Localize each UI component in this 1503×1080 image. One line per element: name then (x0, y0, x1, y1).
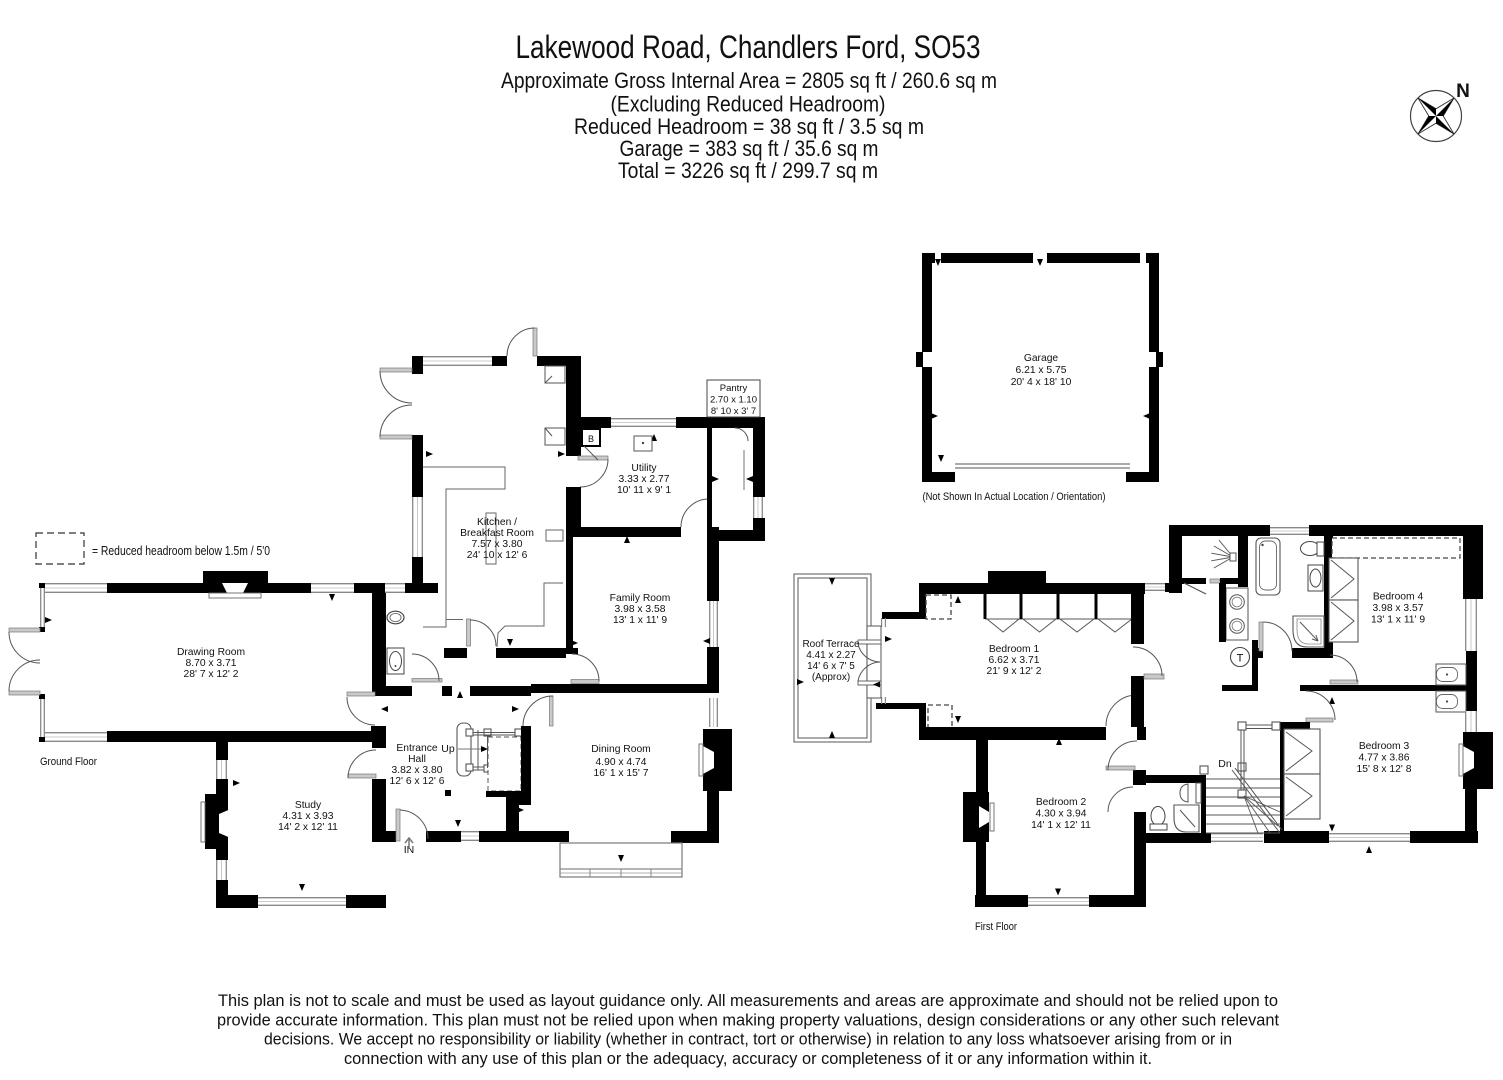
svg-text:4.90 x 4.74: 4.90 x 4.74 (596, 757, 647, 768)
svg-text:8' 10 x 3' 7: 8' 10 x 3' 7 (711, 406, 756, 417)
svg-text:provide accurate information.: provide accurate information. This plan … (217, 1010, 1279, 1029)
svg-text:8.70 x 3.71: 8.70 x 3.71 (186, 658, 237, 669)
svg-text:(Not Shown In Actual Location: (Not Shown In Actual Location / Orientat… (923, 491, 1106, 503)
svg-text:Bedroom 3: Bedroom 3 (1359, 741, 1410, 752)
svg-text:3.82 x 3.80: 3.82 x 3.80 (392, 765, 443, 776)
svg-text:4.31 x 3.93: 4.31 x 3.93 (283, 811, 334, 822)
svg-text:B: B (588, 434, 594, 444)
svg-text:Entrance: Entrance (396, 743, 437, 754)
svg-text:2.70 x 1.10: 2.70 x 1.10 (710, 395, 757, 406)
svg-text:Up: Up (441, 743, 455, 755)
svg-text:4.30 x 3.94: 4.30 x 3.94 (1036, 809, 1087, 820)
svg-text:Total = 3226 sq ft / 299.7 sq: Total = 3226 sq ft / 299.7 sq m (618, 158, 878, 183)
svg-text:13' 1 x 11' 9: 13' 1 x 11' 9 (613, 615, 667, 626)
svg-text:13' 1 x 11' 9: 13' 1 x 11' 9 (1371, 615, 1425, 626)
svg-text:Dn: Dn (1218, 758, 1232, 770)
svg-text:Bedroom 2: Bedroom 2 (1036, 797, 1087, 808)
svg-text:Ground Floor: Ground Floor (40, 756, 97, 768)
svg-text:Lakewood Road, Chandlers Ford,: Lakewood Road, Chandlers Ford, SO53 (516, 29, 981, 65)
svg-text:Bedroom 1: Bedroom 1 (989, 644, 1040, 655)
svg-text:20' 4 x 18' 10: 20' 4 x 18' 10 (1011, 377, 1072, 388)
svg-text:N: N (1456, 81, 1470, 102)
svg-text:Utility: Utility (631, 463, 657, 474)
svg-text:Pantry: Pantry (720, 383, 748, 394)
svg-text:Hall: Hall (408, 754, 426, 765)
svg-text:10' 11 x 9' 1: 10' 11 x 9' 1 (617, 485, 671, 496)
svg-text:4.77 x 3.86: 4.77 x 3.86 (1359, 753, 1410, 764)
svg-text:This plan is not to scale and: This plan is not to scale and must be us… (218, 991, 1278, 1010)
svg-text:16' 1 x 15' 7: 16' 1 x 15' 7 (594, 768, 649, 779)
svg-text:6.62 x 3.71: 6.62 x 3.71 (989, 655, 1040, 666)
svg-text:3.33 x 2.77: 3.33 x 2.77 (619, 474, 670, 485)
svg-text:4.41 x 2.27: 4.41 x 2.27 (806, 650, 856, 661)
svg-text:Bedroom 4: Bedroom 4 (1373, 592, 1424, 603)
svg-text:14' 2 x 12' 11: 14' 2 x 12' 11 (278, 822, 338, 833)
svg-text:Kitchen /: Kitchen / (477, 517, 517, 528)
svg-text:(Excluding Reduced Headroom): (Excluding Reduced Headroom) (611, 92, 886, 117)
svg-text:24' 10 x 12' 6: 24' 10 x 12' 6 (467, 550, 528, 561)
svg-text:= Reduced headroom below 1.5m: = Reduced headroom below 1.5m / 5'0 (92, 544, 270, 558)
svg-text:14' 6 x 7' 5: 14' 6 x 7' 5 (807, 661, 855, 672)
svg-text:connection with any use of thi: connection with any use of this plan or … (344, 1049, 1152, 1068)
svg-text:Family Room: Family Room (610, 593, 671, 604)
svg-text:Breakfast Room: Breakfast Room (460, 528, 534, 539)
svg-text:Roof Terrace: Roof Terrace (802, 639, 860, 650)
svg-text:First Floor: First Floor (975, 921, 1017, 933)
svg-text:3.98 x 3.58: 3.98 x 3.58 (615, 604, 666, 615)
svg-text:Garage: Garage (1024, 353, 1059, 364)
svg-text:6.21 x 5.75: 6.21 x 5.75 (1016, 365, 1067, 376)
svg-text:28' 7 x 12' 2: 28' 7 x 12' 2 (184, 669, 239, 680)
svg-text:T: T (1237, 653, 1244, 665)
svg-text:Approximate Gross Internal Are: Approximate Gross Internal Area = 2805 s… (501, 68, 997, 93)
svg-text:12' 6 x 12' 6: 12' 6 x 12' 6 (390, 776, 445, 787)
svg-text:21' 9 x 12' 2: 21' 9 x 12' 2 (987, 666, 1042, 677)
svg-text:Drawing Room: Drawing Room (177, 647, 245, 658)
svg-text:Dining Room: Dining Room (591, 744, 651, 755)
svg-text:14' 1 x 12' 11: 14' 1 x 12' 11 (1031, 820, 1091, 831)
svg-text:(Approx): (Approx) (812, 672, 850, 683)
svg-text:7.57 x 3.80: 7.57 x 3.80 (472, 539, 523, 550)
svg-text:15' 8 x 12' 8: 15' 8 x 12' 8 (1357, 764, 1412, 775)
svg-text:3.98 x 3.57: 3.98 x 3.57 (1373, 603, 1424, 614)
svg-text:decisions. We accept no respon: decisions. We accept no responsibility o… (264, 1030, 1232, 1049)
svg-text:Study: Study (295, 800, 322, 811)
